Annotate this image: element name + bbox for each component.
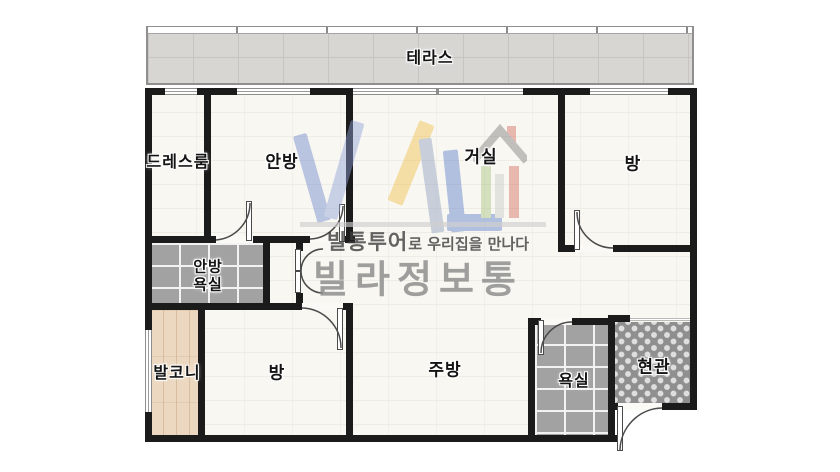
door-leaf bbox=[339, 204, 345, 242]
door-leaf bbox=[337, 308, 343, 350]
wall bbox=[346, 88, 353, 243]
window bbox=[590, 88, 668, 95]
window bbox=[145, 330, 152, 412]
wall bbox=[346, 303, 353, 442]
room-label-dressroom: 드레스룸 bbox=[147, 148, 210, 172]
wall bbox=[528, 318, 535, 442]
terrace-window-frame bbox=[148, 27, 692, 34]
exterior-cutout bbox=[615, 410, 705, 445]
room-label-bathroom: 욕실 bbox=[558, 367, 589, 391]
door-opening bbox=[575, 245, 613, 252]
door-opening bbox=[541, 318, 572, 325]
room-label-bedroom-right: 방 bbox=[625, 150, 642, 175]
window bbox=[237, 88, 310, 95]
room-label-master-bedroom: 안방 bbox=[265, 148, 298, 173]
closet-door-leaf bbox=[295, 271, 301, 293]
window bbox=[165, 88, 197, 95]
room-label-entrance: 현관 bbox=[637, 353, 670, 378]
room-label-balcony: 발코니 bbox=[153, 359, 200, 383]
room-label-living-room: 거실 bbox=[464, 143, 497, 168]
entrance-threshold bbox=[630, 318, 690, 321]
floorplan-canvas: 빌통투어로 우리집을 만나다 빌라정보통 테라스 드레스룸 안방 거실 방 안방… bbox=[0, 0, 840, 472]
wall bbox=[608, 318, 615, 442]
window-mullion bbox=[436, 88, 439, 95]
room-label-terrace: 테라스 bbox=[406, 44, 453, 68]
door-opening bbox=[618, 403, 662, 410]
room-label-bedroom-bottom: 방 bbox=[269, 359, 286, 384]
wall bbox=[145, 435, 618, 442]
door-leaf bbox=[574, 210, 580, 250]
room-label-kitchen: 주방 bbox=[428, 356, 461, 381]
wall bbox=[263, 243, 270, 310]
wall bbox=[558, 88, 565, 252]
closet-door-leaf bbox=[295, 249, 301, 271]
door-leaf bbox=[246, 201, 252, 241]
room-label-master-bath-2: 욕실 bbox=[193, 274, 223, 295]
door-leaf bbox=[538, 320, 544, 355]
door-leaf bbox=[617, 406, 623, 451]
